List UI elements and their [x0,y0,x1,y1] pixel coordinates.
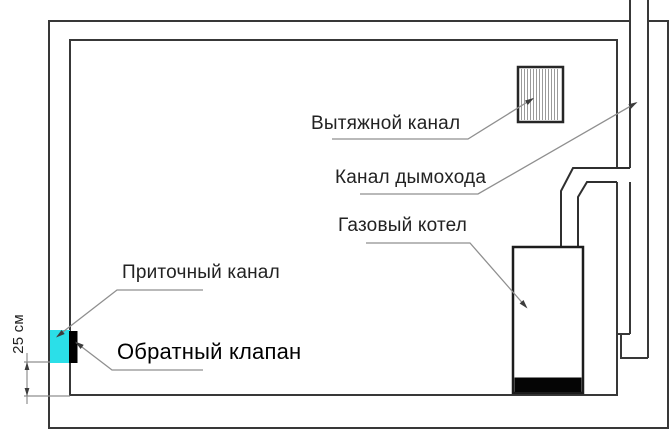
label-check-valve: Обратный клапан [117,340,301,363]
leader-gas-boiler [366,243,526,307]
boiler-base [515,378,582,393]
label-dimension-25cm: 25 см [11,314,27,354]
leader-supply-channel [57,290,203,337]
flue-pipe [561,168,631,248]
dimension-arrow-up [25,362,30,370]
label-chimney-channel: Канал дымохода [335,168,486,188]
label-supply-channel: Приточный канал [122,263,280,283]
exhaust-grille [518,67,563,122]
ventilation-diagram: Вытяжной канал Канал дымохода Газовый ко… [0,0,671,440]
gas-boiler [513,247,583,393]
label-exhaust-channel: Вытяжной канал [311,114,460,134]
dimension-arrow-down [25,388,30,396]
label-gas-boiler: Газовый котел [338,216,467,236]
diagram-drawing [0,0,671,440]
check-valve [69,331,78,363]
